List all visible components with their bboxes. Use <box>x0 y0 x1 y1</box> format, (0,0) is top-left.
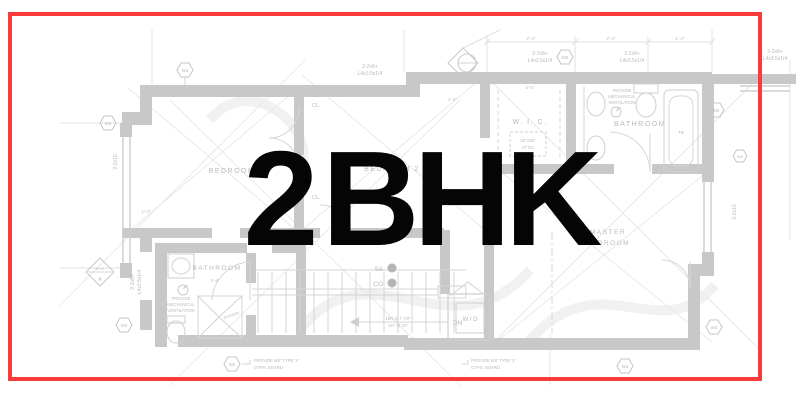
red-border-frame <box>8 12 762 381</box>
